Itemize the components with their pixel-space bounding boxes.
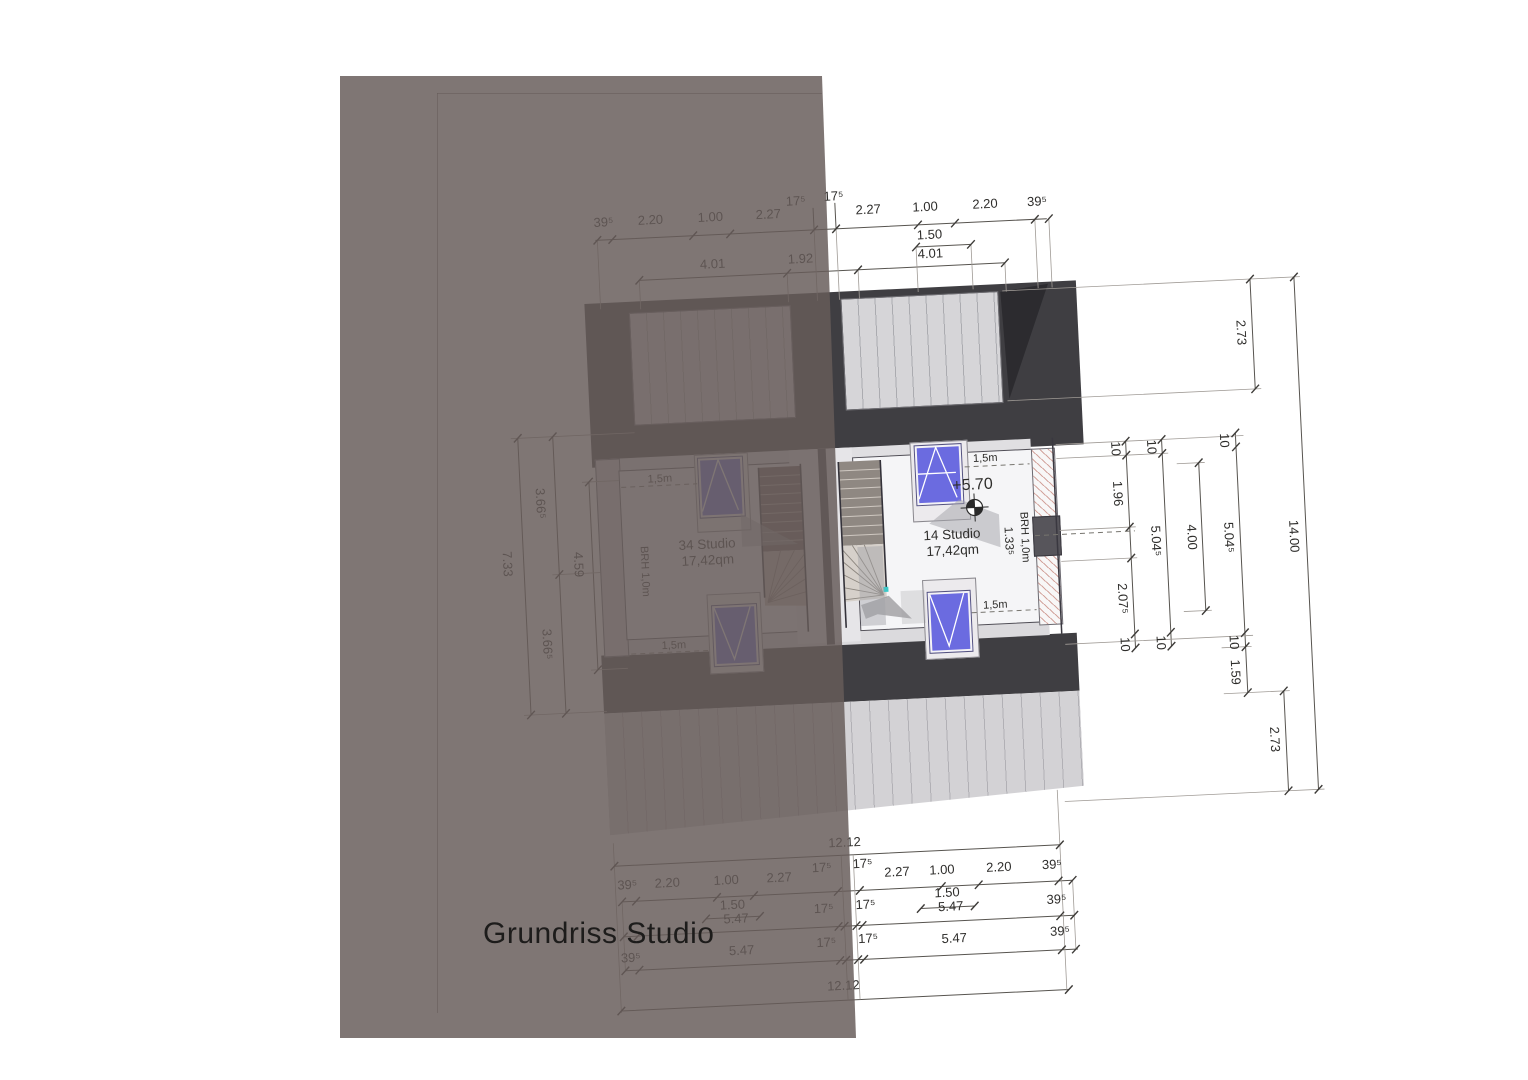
dim-label: 10 xyxy=(1218,433,1232,448)
dim-label: 10 xyxy=(1228,635,1242,650)
dim-label: 1.50 xyxy=(934,885,960,899)
dim-label: 1.00 xyxy=(912,199,938,213)
dim-label: 17⁵ xyxy=(855,897,875,911)
roof-hip-triangle xyxy=(1000,284,1053,399)
dim-label: 1.59 xyxy=(1229,659,1243,685)
drawing-sheet: 39⁵ 2.20 1.00 2.27 17⁵ 17⁵ 2.27 1.00 2.2… xyxy=(0,0,1528,1080)
room-name: 14 Studio xyxy=(923,527,981,543)
dim-label: 39⁵ xyxy=(1042,857,1062,871)
dim-label: 2.07⁵ xyxy=(1116,583,1130,614)
dim-label: 39⁵ xyxy=(1050,924,1070,938)
dim-label: 10 xyxy=(1154,635,1168,650)
dim-label: 1.00 xyxy=(929,862,955,876)
dim-label: 17⁵ xyxy=(858,931,878,945)
sill-height-value: 1.33⁵ xyxy=(1003,526,1016,555)
dim-label: 10 xyxy=(1145,439,1159,454)
dim-label: 10 xyxy=(1118,637,1132,652)
dim-label: 5.47 xyxy=(941,931,967,945)
dim-label: 39⁵ xyxy=(1046,892,1066,906)
dim-label: 2.73 xyxy=(1234,320,1248,346)
dim-label: 5.04⁵ xyxy=(1149,525,1163,556)
sill-height-label: BRH 1,0m xyxy=(1017,512,1030,563)
dim-label: 2.27 xyxy=(855,202,881,216)
headroom-label: 1,5m xyxy=(983,600,1008,612)
dim-label: 14.00 xyxy=(1287,520,1302,553)
headroom-label: 1,5m xyxy=(973,453,998,465)
dim-label: 4.01 xyxy=(917,246,943,260)
dim-label: 17⁵ xyxy=(852,856,872,870)
wall-edge-lines xyxy=(1052,438,1061,634)
dim-label: 5.04⁵ xyxy=(1222,522,1236,553)
dim-label: 1.50 xyxy=(916,227,942,241)
dim-label: 5.47 xyxy=(938,899,964,913)
dim-label: 1.96 xyxy=(1111,481,1125,507)
level-label: +5.70 xyxy=(952,477,993,495)
dim-label: 10 xyxy=(1109,441,1123,456)
room-area: 17,42qm xyxy=(926,543,979,559)
page-title: Grundriss Studio xyxy=(483,917,714,951)
dim-label: 2.20 xyxy=(986,860,1012,874)
dim-label: 39⁵ xyxy=(1027,194,1047,208)
dim-label: 2.27 xyxy=(884,865,910,879)
dim-label: 4.00 xyxy=(1185,524,1199,550)
dim-label: 2.73 xyxy=(1268,726,1282,752)
dim-label: 2.20 xyxy=(972,197,998,211)
